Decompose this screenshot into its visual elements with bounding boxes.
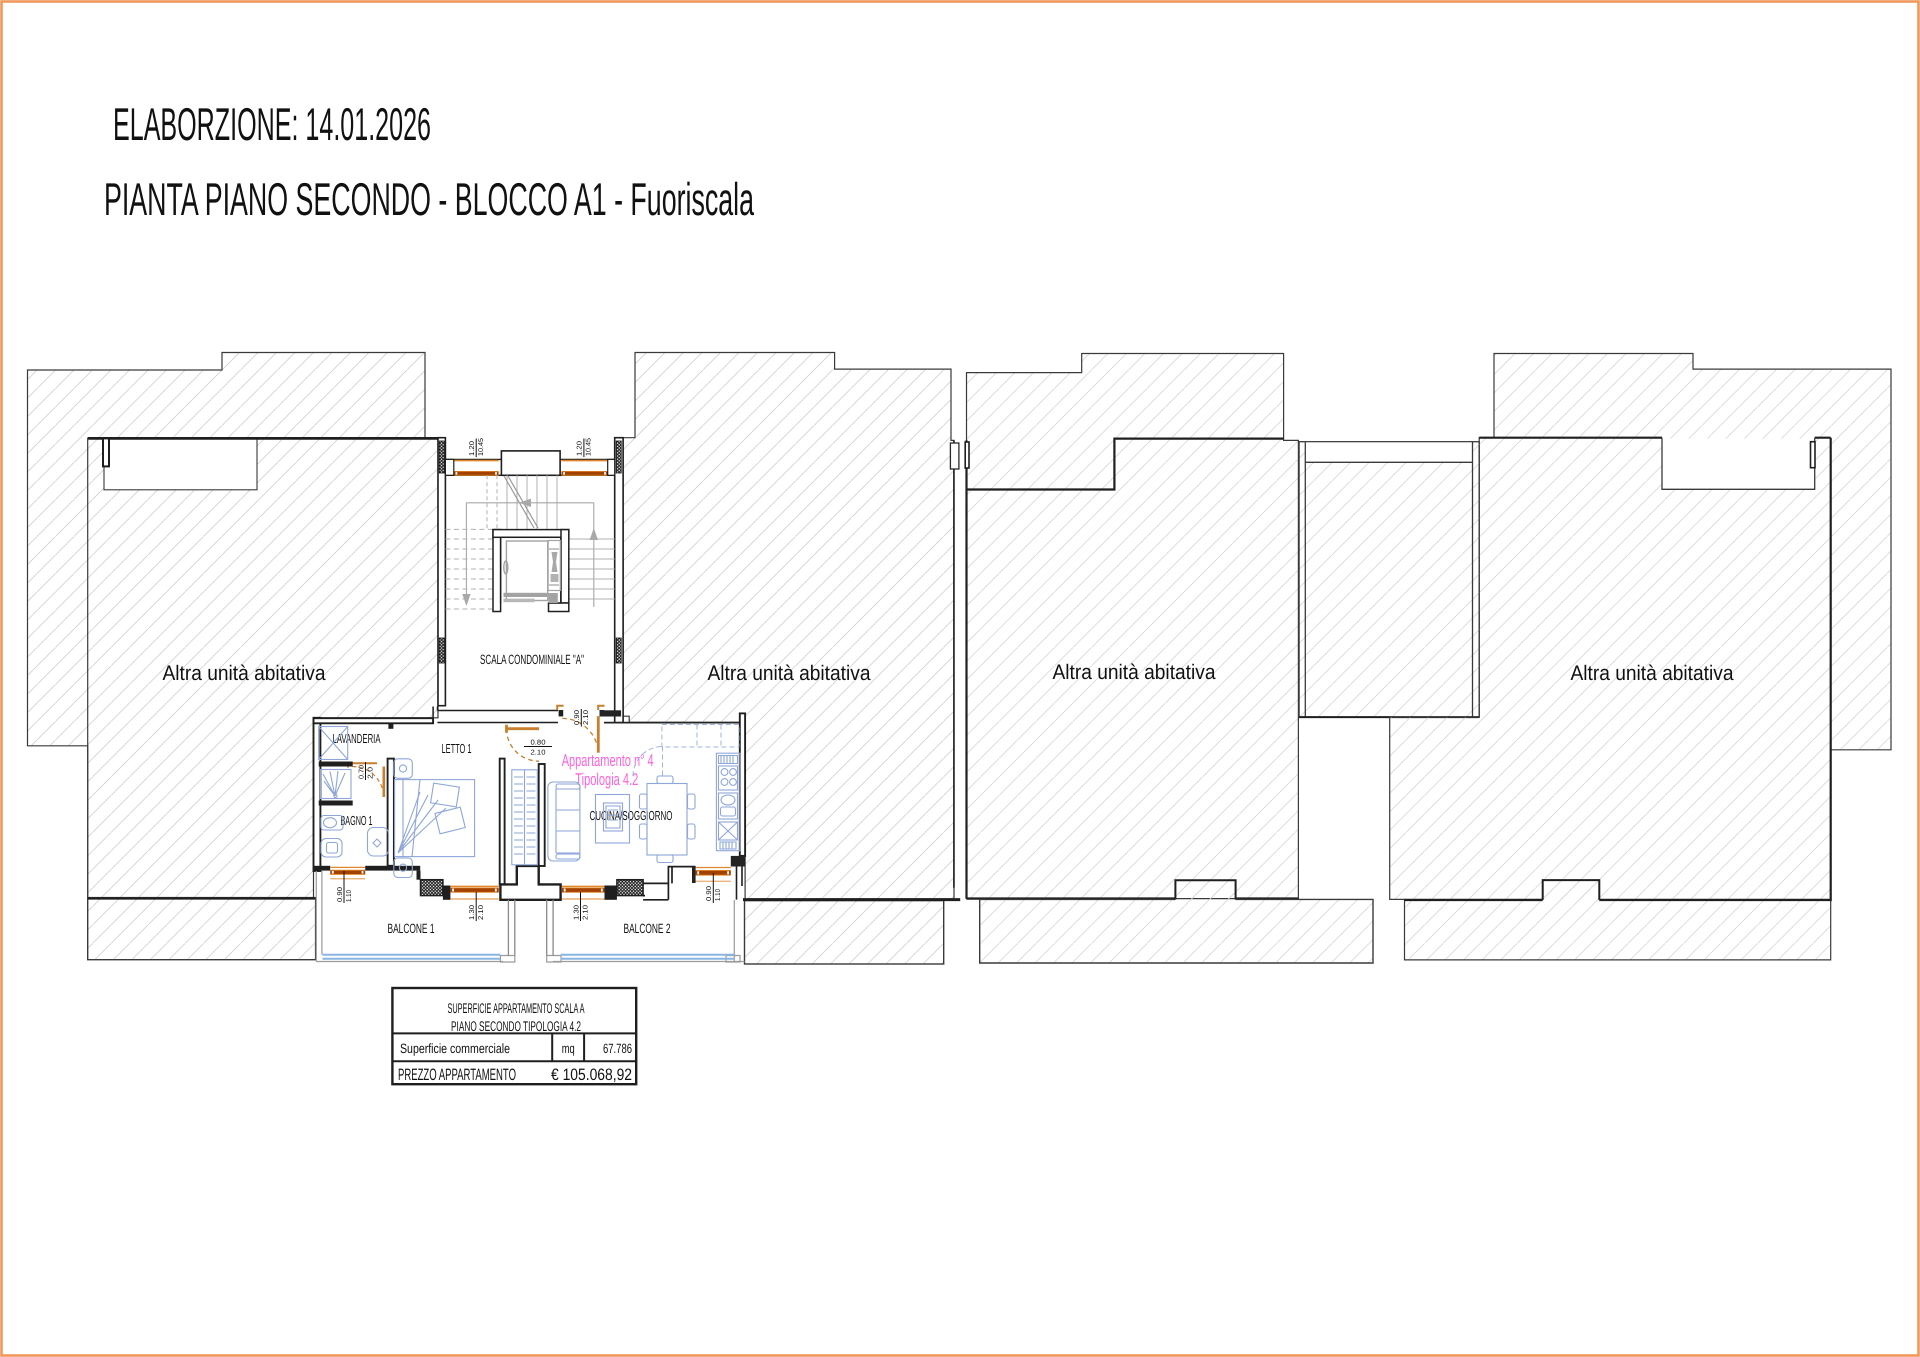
- svg-text:€ 105.068,92: € 105.068,92: [551, 1066, 632, 1084]
- svg-text:Altra unità abitativa: Altra unità abitativa: [708, 662, 871, 685]
- svg-text:1.10: 1.10: [715, 889, 722, 901]
- svg-text:1.30: 1.30: [469, 905, 476, 920]
- svg-text:2.0: 2.0: [367, 767, 374, 779]
- svg-text:1.20: 1.20: [577, 441, 584, 456]
- svg-text:0.90: 0.90: [337, 887, 344, 902]
- svg-text:BALCONE 2: BALCONE 2: [624, 921, 671, 936]
- svg-text:1.20: 1.20: [469, 441, 476, 456]
- svg-text:BAGNO 1: BAGNO 1: [341, 813, 373, 828]
- svg-text:67.786: 67.786: [603, 1041, 632, 1056]
- svg-text:0.70: 0.70: [358, 765, 365, 779]
- svg-text:LAVANDERIA: LAVANDERIA: [333, 731, 381, 746]
- svg-text:LETTO 1: LETTO 1: [442, 741, 472, 756]
- svg-text:Tipologia 4.2: Tipologia 4.2: [575, 770, 638, 789]
- svg-text:2.10: 2.10: [531, 750, 546, 757]
- svg-text:0.90: 0.90: [706, 886, 713, 901]
- svg-text:1.30: 1.30: [573, 905, 580, 920]
- svg-text:PREZZO APPARTAMENTO: PREZZO APPARTAMENTO: [398, 1066, 516, 1084]
- svg-text:2.10: 2.10: [478, 905, 485, 920]
- svg-text:2.10: 2.10: [583, 710, 590, 725]
- svg-text:Altra unità abitativa: Altra unità abitativa: [1571, 662, 1734, 685]
- svg-text:BALCONE 1: BALCONE 1: [388, 921, 435, 936]
- svg-text:0.80: 0.80: [531, 740, 546, 747]
- svg-text:PIANTA PIANO SECONDO - BLOCCO: PIANTA PIANO SECONDO - BLOCCO A1 - Fuori…: [104, 173, 754, 225]
- svg-text:PIANO SECONDO TIPOLOGIA 4.2: PIANO SECONDO TIPOLOGIA 4.2: [451, 1018, 581, 1034]
- svg-text:ELABORZIONE: 14.01.2026: ELABORZIONE: 14.01.2026: [113, 98, 431, 150]
- svg-text:mq: mq: [562, 1041, 575, 1056]
- svg-text:2.10: 2.10: [582, 905, 589, 920]
- svg-text:SCALA CONDOMINIALE "A": SCALA CONDOMINIALE "A": [480, 652, 584, 667]
- svg-text:Altra unità abitativa: Altra unità abitativa: [163, 662, 326, 685]
- svg-text:SUPERFICIE APPARTAMENTO SCALA: SUPERFICIE APPARTAMENTO SCALA A: [448, 1000, 585, 1016]
- svg-text:Altra unità abitativa: Altra unità abitativa: [1053, 661, 1216, 684]
- svg-text:10.45: 10.45: [586, 438, 593, 456]
- svg-text:10.45: 10.45: [478, 438, 485, 456]
- svg-text:0.90: 0.90: [574, 710, 581, 725]
- svg-text:1.10: 1.10: [346, 890, 353, 902]
- svg-text:Appartamento n° 4: Appartamento n° 4: [562, 751, 654, 770]
- svg-text:CUCINA/SOGGIORNO: CUCINA/SOGGIORNO: [590, 808, 673, 823]
- svg-text:Superficie commerciale: Superficie commerciale: [400, 1041, 510, 1056]
